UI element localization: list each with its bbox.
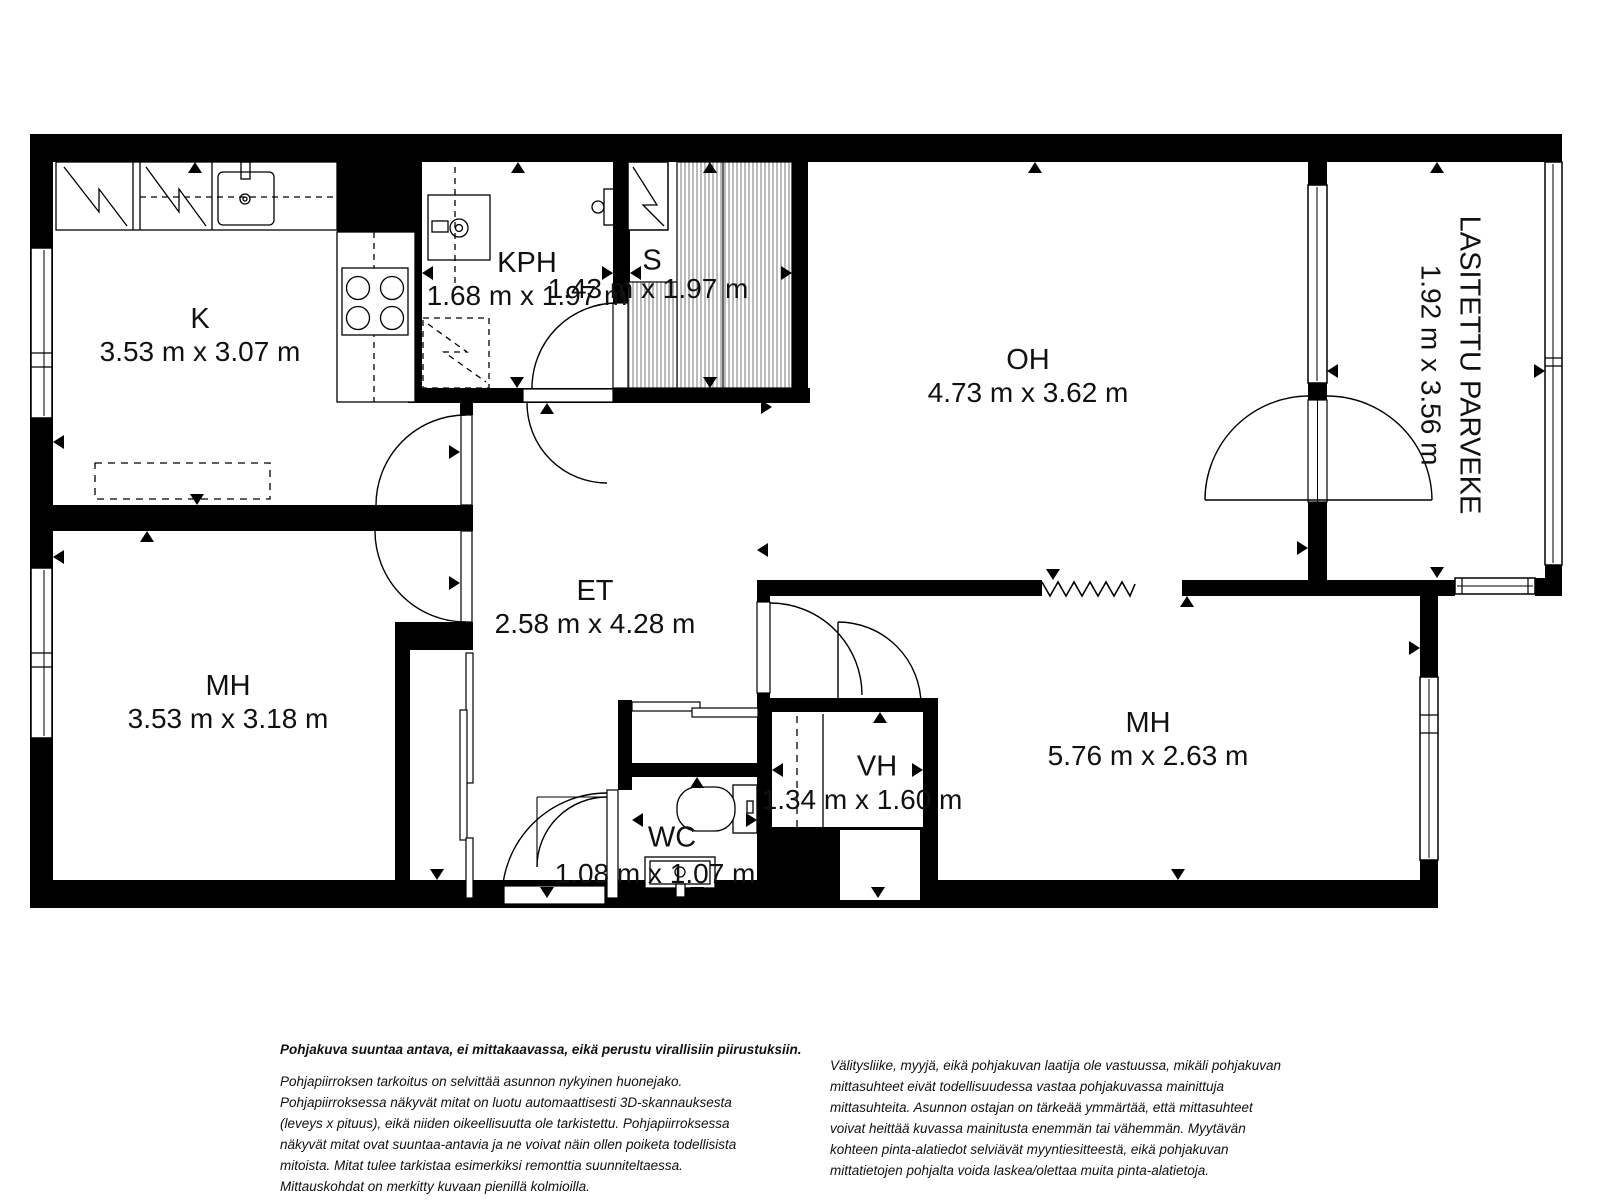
room-dims: 1.08 m x 1.07 m bbox=[555, 858, 756, 890]
room-dims: 1.43 m x 1.97 m bbox=[548, 273, 749, 305]
window-kitchen bbox=[31, 248, 52, 418]
room-label-kitchen: K 3.53 m x 3.07 m bbox=[100, 303, 301, 369]
hall-closet-panel bbox=[460, 710, 467, 840]
room-dims: 2.58 m x 4.28 m bbox=[495, 609, 696, 641]
disclaimer-left-text: Pohjapiirroksen tarkoitus on selvittää a… bbox=[280, 1072, 758, 1198]
room-name: ET bbox=[495, 575, 696, 608]
shower-icon bbox=[592, 201, 604, 213]
door-kitchen bbox=[376, 415, 466, 505]
door-wc-leaf bbox=[537, 797, 607, 867]
room-name: VH bbox=[857, 750, 897, 783]
et-closet-sliding-door bbox=[632, 702, 700, 711]
et-closet-sliding-door bbox=[692, 708, 758, 717]
room-label-wc: WC bbox=[648, 821, 696, 854]
door-vestibule-1 bbox=[770, 603, 862, 695]
room-label-sauna-dims: 1.43 m x 1.97 m bbox=[548, 273, 749, 305]
room-dims: 1.92 m x 3.56 m bbox=[1415, 216, 1447, 515]
hall-closet-panel bbox=[466, 838, 473, 898]
room-label-balcony: LASITETTU PARVEKE 1.92 m x 3.56 m bbox=[1415, 216, 1486, 515]
door-bathroom bbox=[532, 303, 617, 388]
floor-plan-drawing bbox=[0, 0, 1600, 1200]
zigzag-opening-symbol bbox=[1042, 582, 1135, 596]
disclaimer-right-text: Välitysliike, myyjä, eikä pohjakuvan laa… bbox=[830, 1056, 1290, 1182]
window-balcony-bottom bbox=[1455, 578, 1535, 594]
room-name: WC bbox=[648, 821, 696, 854]
room-dims: 3.53 m x 3.18 m bbox=[128, 704, 329, 736]
room-label-bedroom-right: MH 5.76 m x 2.63 m bbox=[1048, 707, 1249, 773]
door-bedroom-left bbox=[375, 531, 466, 622]
room-dims: 1.34 m x 1.60 m bbox=[762, 784, 963, 816]
room-name: K bbox=[100, 303, 301, 336]
room-label-walkin-closet: VH bbox=[857, 750, 897, 783]
room-name: LASITETTU PARVEKE bbox=[1453, 216, 1486, 515]
door-hall bbox=[527, 403, 607, 483]
floor-plan-page: K 3.53 m x 3.07 m KPH 1.68 m x 1.97 m S … bbox=[0, 0, 1600, 1200]
window-bedroom-left bbox=[31, 568, 52, 738]
window-balcony-left bbox=[1308, 185, 1327, 383]
sauna-heater-icon bbox=[628, 162, 668, 230]
room-name: OH bbox=[928, 344, 1129, 377]
room-label-walkin-closet-dims: 1.34 m x 1.60 m bbox=[762, 784, 963, 816]
dining-table-dashed bbox=[95, 463, 270, 499]
room-label-wc-dims: 1.08 m x 1.07 m bbox=[555, 858, 756, 890]
window-bedroom-right bbox=[1420, 677, 1438, 860]
room-label-entry: ET 2.58 m x 4.28 m bbox=[495, 575, 696, 641]
window-balcony-right bbox=[1545, 162, 1562, 565]
room-dims: 4.73 m x 3.62 m bbox=[928, 378, 1129, 410]
room-label-bedroom-left: MH 3.53 m x 3.18 m bbox=[128, 670, 329, 736]
room-dims: 3.53 m x 3.07 m bbox=[100, 337, 301, 369]
room-name: MH bbox=[128, 670, 329, 703]
room-name: MH bbox=[1048, 707, 1249, 740]
room-dims: 5.76 m x 2.63 m bbox=[1048, 741, 1249, 773]
disclaimer-heading: Pohjakuva suuntaa antava, ei mittakaavas… bbox=[280, 1042, 801, 1057]
door-vestibule-2 bbox=[838, 622, 921, 705]
room-label-living-room: OH 4.73 m x 3.62 m bbox=[928, 344, 1129, 410]
